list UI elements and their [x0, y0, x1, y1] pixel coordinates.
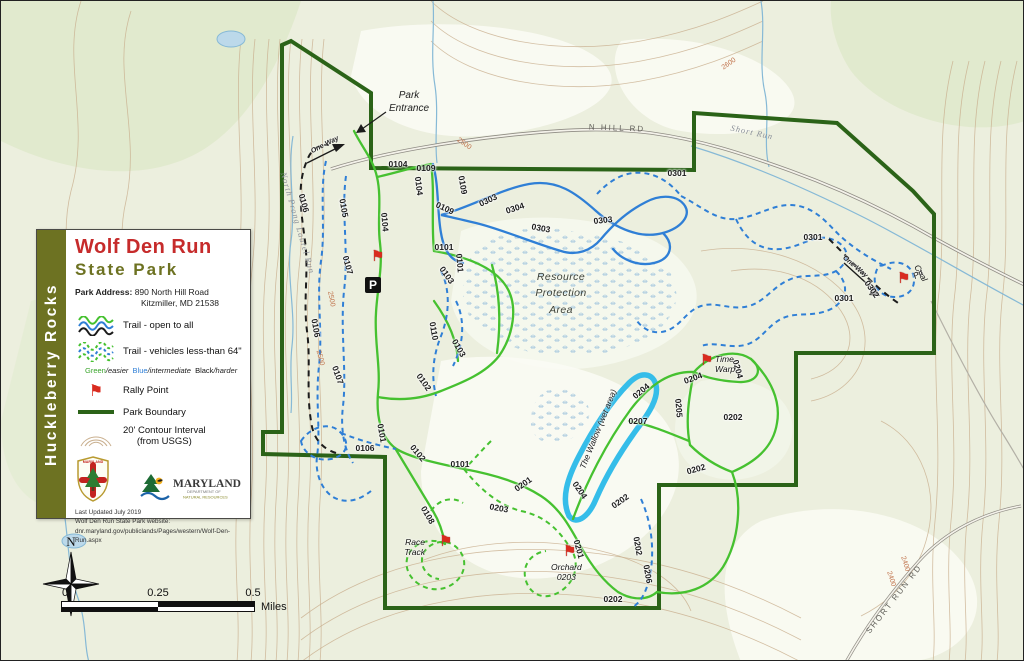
scale-ticks: 0 0.25 0.5	[61, 587, 291, 601]
scale-tick-quarter: 0.25	[147, 587, 168, 599]
svg-text:DEPARTMENT OF: DEPARTMENT OF	[187, 489, 221, 494]
trail-vehicles-label: Trail - vehicles less-than 64"	[123, 346, 242, 357]
address-line1: 890 North Hill Road	[135, 287, 209, 297]
maryland-park-service-logo: MARYLAND	[75, 456, 111, 502]
park-boundary-symbol	[75, 410, 117, 414]
svg-text:MARYLAND: MARYLAND	[83, 460, 104, 464]
scale-bar-graphic	[61, 601, 255, 612]
park-map-canvas: 0104010901040104010901090303030403030303…	[0, 0, 1024, 661]
scale-tick-0: 0	[62, 587, 68, 599]
website-intro: Wolf Den Run State Park website:	[75, 517, 243, 526]
park-address: Park Address: 890 North Hill Road Kitzmi…	[75, 287, 243, 310]
trail-open-label: Trail - open to all	[123, 320, 193, 331]
address-label: Park Address:	[75, 287, 132, 297]
legend-sidebar: Huckleberry Rocks	[37, 230, 66, 518]
svg-text:NATURAL RESOURCES: NATURAL RESOURCES	[183, 494, 228, 499]
trail-vehicles-symbol	[75, 342, 117, 362]
scale-bar: 0 0.25 0.5 Miles	[61, 587, 291, 625]
sidebar-title: Huckleberry Rocks	[43, 283, 61, 466]
legend-item-trail-open: Trail - open to all	[75, 316, 243, 336]
legend-item-contour: 20' Contour Interval (from USGS)	[75, 424, 243, 448]
contour-symbol	[75, 424, 117, 448]
legend-content: Wolf Den Run State Park Park Address: 89…	[66, 230, 250, 518]
legend-item-rally: ⚑ Rally Point	[75, 381, 243, 401]
address-line2: Kitzmiller, MD 21538	[141, 298, 243, 309]
park-title-line2: State Park	[75, 260, 243, 280]
park-boundary-label: Park Boundary	[123, 407, 186, 418]
scale-unit-label: Miles	[261, 601, 287, 613]
difficulty-key: Green/easier Blue/intermediate Black/har…	[85, 366, 243, 375]
last-updated: Last Updated July 2019	[75, 508, 243, 517]
parking-icon: P	[365, 277, 381, 293]
rally-point-label: Rally Point	[123, 385, 168, 396]
difficulty-black: Black	[195, 366, 213, 375]
park-title-line1: Wolf Den Run	[75, 236, 243, 259]
svg-text:N: N	[66, 534, 76, 549]
maryland-dnr-logo: MARYLAND DEPARTMENT OF NATURAL RESOURCES	[139, 472, 243, 502]
rally-point-symbol: ⚑	[75, 381, 117, 401]
trail-open-symbol	[75, 316, 117, 336]
difficulty-green: Green	[85, 366, 106, 375]
legend-logos: MARYLAND MARYLAND DEPARTMENT OF NATURAL …	[75, 456, 243, 502]
scale-tick-half: 0.5	[245, 587, 260, 599]
legend-panel: Huckleberry Rocks Wolf Den Run State Par…	[36, 229, 251, 519]
legend-item-boundary: Park Boundary	[75, 407, 243, 418]
difficulty-blue: Blue	[133, 366, 148, 375]
legend-item-trail-vehicles: Trail - vehicles less-than 64"	[75, 342, 243, 362]
contour-label: 20' Contour Interval (from USGS)	[123, 425, 206, 447]
